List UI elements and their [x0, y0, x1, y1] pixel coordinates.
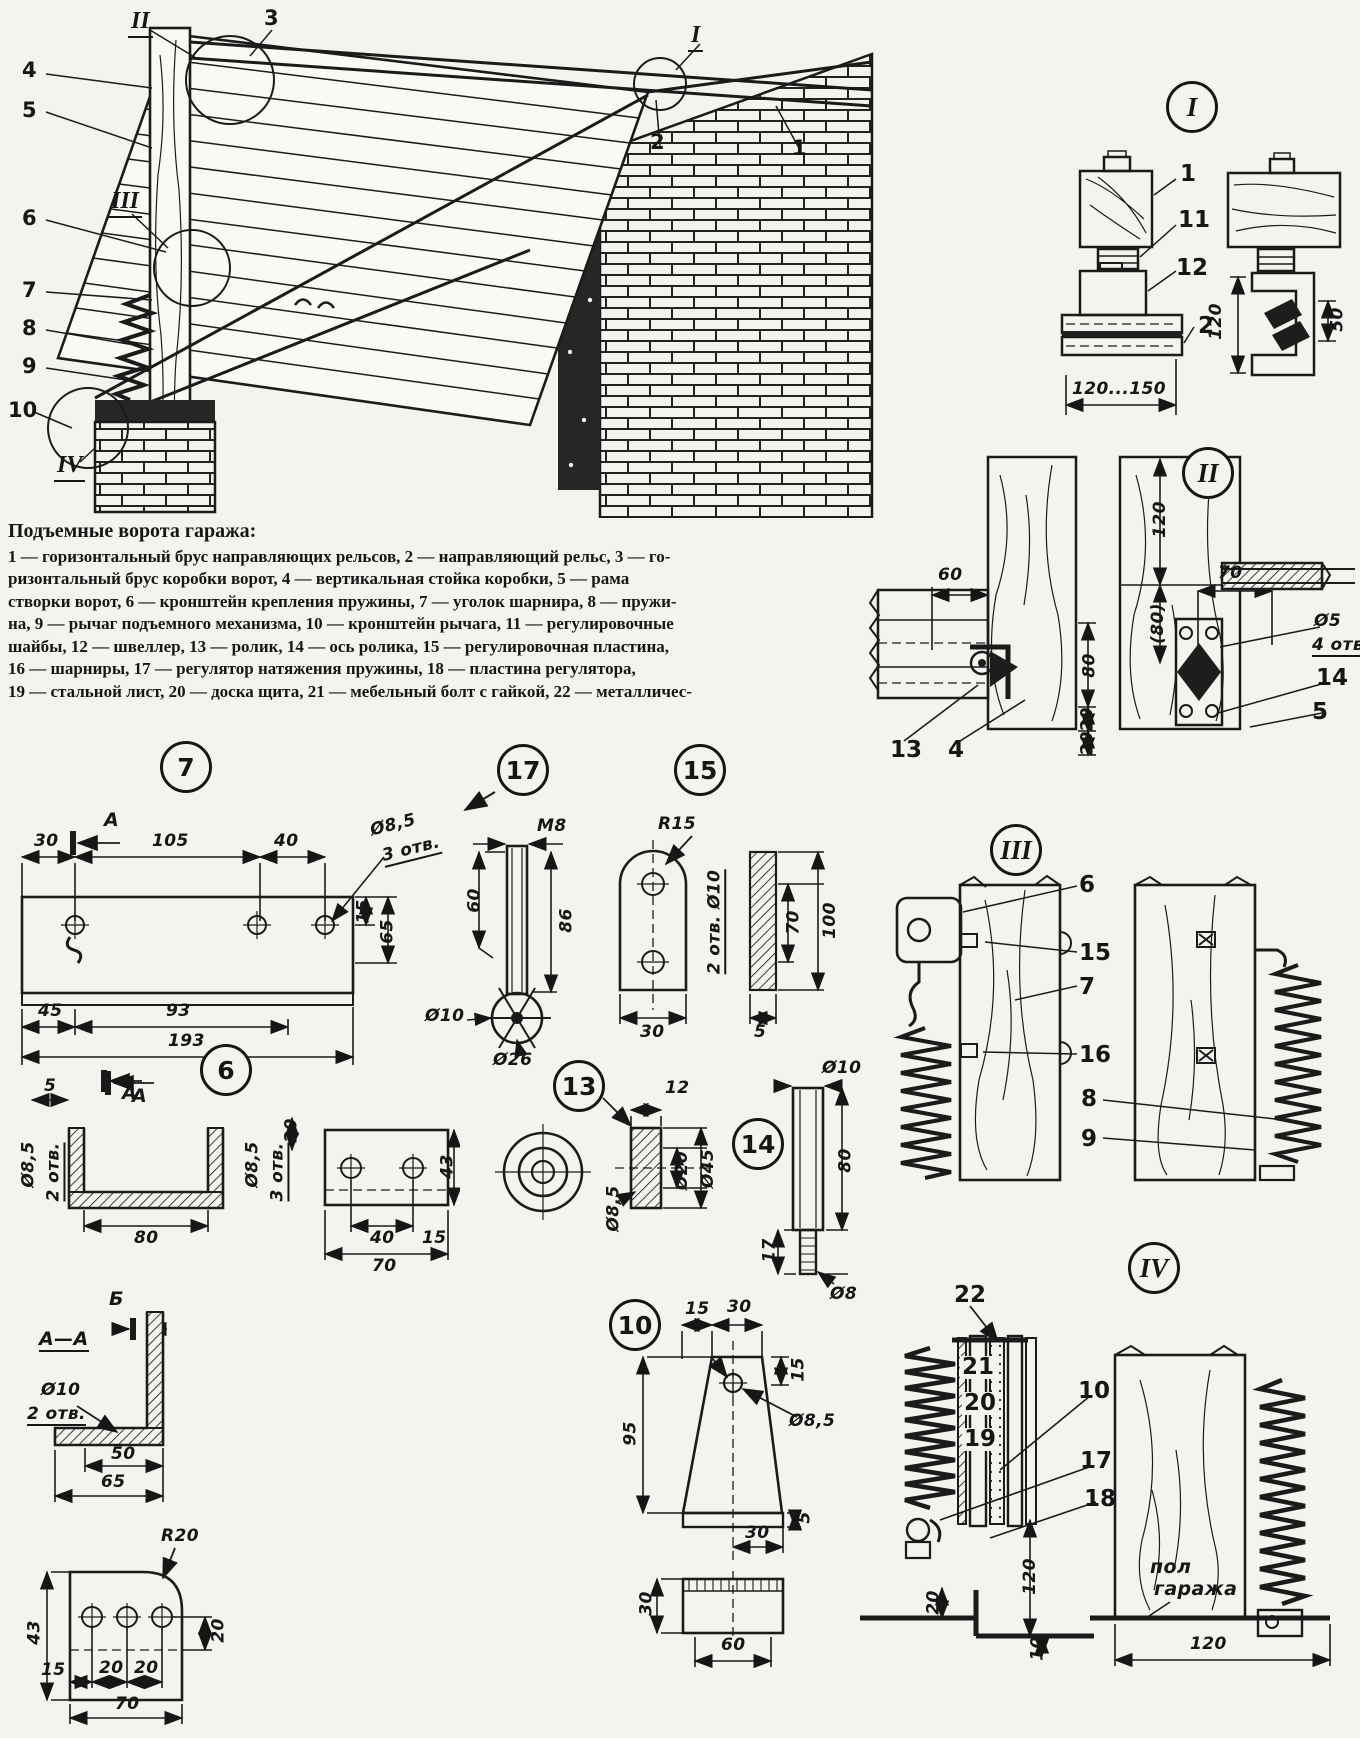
- detail-III-part-8: 8: [1081, 1088, 1097, 1111]
- part-13-dim-12: 12: [665, 1080, 689, 1097]
- detail-II-badge: II: [1182, 447, 1234, 499]
- part-13-dim-phi85: Ø8,5: [606, 1185, 623, 1231]
- part-10-dim-15: 15: [685, 1301, 709, 1318]
- main-callout-1: 1: [792, 138, 807, 159]
- detail-IV-dim-120: 120: [1022, 1558, 1039, 1595]
- detail-II-dim-70: 70: [1218, 565, 1242, 582]
- detail-IV-floor-label-2: гаража: [1154, 1580, 1237, 1599]
- detail-II-dim-120: 120: [1152, 501, 1169, 538]
- detail-IV-part-22: 22: [954, 1284, 986, 1307]
- detail-II-part-4: 4: [948, 739, 964, 762]
- bracket-dim-43: 43: [27, 1620, 44, 1644]
- detail-I-badge: I: [1166, 81, 1218, 133]
- main-callout-3: 3: [264, 8, 279, 29]
- part-6-dim-20: 20: [284, 1118, 301, 1142]
- detail-I-dim-120: 120: [1208, 303, 1225, 340]
- part-15-dim-100: 100: [822, 902, 839, 939]
- part-15: 15 R15 2 отв. Ø10 70 100 30 5: [612, 680, 847, 1075]
- detail-III-part-15: 15: [1079, 942, 1111, 965]
- detail-III-part-9: 9: [1081, 1128, 1097, 1151]
- detail-II-dim-20b: 20: [1080, 731, 1097, 755]
- detail-I-dim-50: 50: [1330, 307, 1347, 331]
- section-AA-dim-otv: 2 отв.: [27, 1406, 86, 1426]
- caption-line: ризонтальный брус коробки ворот, 4 — вер…: [8, 568, 828, 590]
- part-17-dim-phi10: Ø10: [425, 1008, 464, 1025]
- detail-I-part-11: 11: [1178, 209, 1210, 232]
- part-7-dim-30: 30: [34, 833, 58, 850]
- detail-II-part-13: 13: [890, 739, 922, 762]
- part-7-dim-65: 65: [380, 919, 397, 943]
- section-AA-dim-50: 50: [111, 1446, 135, 1463]
- part-15-dim-otv: 2 отв. Ø10: [706, 870, 726, 975]
- part-17-dim-m8: М8: [537, 818, 567, 835]
- part-13-dim-phi45: Ø45: [700, 1149, 717, 1188]
- garage-gate-illustration: [0, 0, 940, 518]
- part-15-dim-30: 30: [640, 1024, 664, 1041]
- detail-IV-part-18: 18: [1084, 1488, 1116, 1511]
- caption-line: 1 — горизонтальный брус направляющих рел…: [8, 546, 828, 568]
- detail-IV-badge: IV: [1128, 1242, 1180, 1294]
- part-10-dim-30c: 30: [639, 1591, 656, 1615]
- part-6-dim-5: 5: [44, 1078, 56, 1095]
- caption-line: 16 — шарниры, 17 — регулятор натяжения п…: [8, 658, 828, 680]
- bracket-dim-15: 15: [41, 1662, 65, 1679]
- part-14-badge: 14: [732, 1118, 784, 1170]
- part-14-dim-17: 17: [762, 1238, 779, 1262]
- bracket-dim-r20: R20: [161, 1528, 199, 1545]
- main-drawing: II 3 4 5 6 7 8 9 10 III IV 2 1 I: [0, 0, 940, 518]
- part-10-dim-30: 30: [727, 1299, 751, 1316]
- detail-IV-part-17: 17: [1080, 1450, 1112, 1473]
- page: II 3 4 5 6 7 8 9 10 III IV 2 1 I Подъемн…: [0, 0, 1360, 1738]
- part-10-badge: 10: [609, 1299, 661, 1351]
- main-callout-4: 4: [22, 60, 37, 81]
- part-6-dim-40: 40: [370, 1230, 394, 1247]
- bracket-dim-20b: 20: [134, 1660, 158, 1677]
- part-6-section-a: А: [122, 1084, 137, 1103]
- part-7-dim-45: 45: [38, 1003, 62, 1020]
- detail-III-badge: III: [990, 824, 1042, 876]
- section-AA-dim-65: 65: [101, 1474, 125, 1491]
- detail-I-part-1: 1: [1180, 163, 1196, 186]
- part-10-dim-60: 60: [721, 1637, 745, 1654]
- part-6-dim-15: 15: [422, 1230, 446, 1247]
- section-AA-marker-b: Б: [109, 1290, 124, 1309]
- part-6-dim-70: 70: [372, 1258, 396, 1275]
- detail-IV-part-20: 20: [962, 1392, 998, 1415]
- part-6-dim-phiL: Ø8,5: [21, 1141, 38, 1187]
- detail-IV-drawing: [790, 1190, 1360, 1738]
- part-6-dim-80: 80: [134, 1230, 158, 1247]
- section-AA-dim-phi10: Ø10: [41, 1382, 80, 1399]
- part-6-badge: 6: [200, 1044, 252, 1096]
- detail-I-drawing: [940, 75, 1360, 420]
- part-7-dim-93: 93: [166, 1003, 190, 1020]
- detail-IV-dim-20: 20: [926, 1590, 943, 1614]
- part-6-dim-phiR: Ø8,5: [245, 1141, 262, 1187]
- detail-II-dim-4otv: 4 отв.: [1312, 637, 1360, 657]
- detail-I: I 1 11 12 2 120...150 120 50: [940, 75, 1360, 420]
- part-7-dim-105: 105: [152, 833, 189, 850]
- caption-line: створки ворот, 6 — кронштейн крепления п…: [8, 591, 828, 613]
- main-callout-2: 2: [650, 132, 665, 153]
- part-13-badge: 13: [553, 1060, 605, 1112]
- part-7-section-a: А: [104, 811, 119, 830]
- main-callout-8: 8: [22, 318, 37, 339]
- main-callout-5: 5: [22, 100, 37, 121]
- detail-IV-part-10: 10: [1078, 1380, 1110, 1403]
- part-17-dim-60: 60: [467, 888, 484, 912]
- detail-II-dim-60: 60: [938, 567, 962, 584]
- part-14-dim-80: 80: [838, 1148, 855, 1172]
- detail-II-part-5: 5: [1312, 701, 1328, 724]
- part-10-dim-30b: 30: [745, 1525, 769, 1542]
- detail-III-part-6: 6: [1079, 874, 1095, 897]
- main-callout-I: I: [688, 22, 703, 52]
- main-callout-7: 7: [22, 280, 37, 301]
- caption: Подъемные ворота гаража: 1 — горизонталь…: [8, 520, 828, 703]
- part-17-dim-86: 86: [559, 908, 576, 932]
- part-13: 13 12 Ø8,5 Ø20 Ø45: [455, 1040, 720, 1275]
- part-17-badge: 17: [497, 744, 549, 796]
- bracket-dim-20: 20: [211, 1618, 228, 1642]
- detail-II-dim-20a: 20: [1080, 707, 1097, 731]
- detail-I-part-12: 12: [1176, 257, 1208, 280]
- part-6-dim-otvL: 2 отв.: [45, 1143, 65, 1202]
- detail-IV-part-19: 19: [962, 1428, 998, 1451]
- part-7-badge: 7: [160, 741, 212, 793]
- main-callout-III: III: [108, 188, 142, 218]
- main-callout-6: 6: [22, 208, 37, 229]
- part-13-dim-phi20: Ø20: [674, 1151, 691, 1190]
- part-15-dim-5: 5: [754, 1024, 766, 1041]
- main-callout-10: 10: [8, 400, 37, 421]
- part-15-dim-r15: R15: [658, 816, 696, 833]
- part-7-dim-15: 15: [356, 899, 373, 923]
- detail-II-dim-80: 80: [1082, 653, 1099, 677]
- detail-III-drawing: [855, 790, 1360, 1195]
- detail-II-dim-80p: (80): [1150, 603, 1167, 644]
- main-callout-IV: IV: [54, 452, 85, 482]
- bracket-dim-20a: 20: [99, 1660, 123, 1677]
- part-6-dim-otvR: 3 отв.: [269, 1143, 289, 1202]
- part-15-dim-70: 70: [786, 910, 803, 934]
- detail-III-part-7: 7: [1079, 976, 1095, 999]
- detail-IV-dim-10: 10: [1030, 1636, 1047, 1660]
- bracket-plate-drawing: [15, 1520, 295, 1738]
- part-10-dim-95: 95: [623, 1421, 640, 1445]
- detail-II: II 60 80 20 20 120 (80) 70 Ø5 4 отв. 13 …: [820, 395, 1360, 800]
- bracket-dim-70: 70: [115, 1696, 139, 1713]
- part-15-badge: 15: [674, 744, 726, 796]
- part-7-dim-40: 40: [274, 833, 298, 850]
- detail-III: III 6 15 7 16 8 9: [855, 790, 1360, 1195]
- detail-IV-dim-120b: 120: [1190, 1636, 1227, 1653]
- detail-II-dim-phi5: Ø5: [1314, 613, 1341, 630]
- part-15-drawing: [612, 680, 847, 1075]
- detail-IV-part-21: 21: [960, 1356, 996, 1379]
- caption-line: шайбы, 12 — швеллер, 13 — ролик, 14 — ос…: [8, 636, 828, 658]
- detail-IV-floor-label-1: пол: [1150, 1558, 1191, 1577]
- detail-II-part-14: 14: [1316, 667, 1348, 690]
- main-callout-9: 9: [22, 356, 37, 377]
- main-callout-II: II: [128, 8, 153, 38]
- detail-IV: IV 22 21 20 19 10 17 18 20 120 10 пол га…: [790, 1190, 1360, 1738]
- section-AA-title: А—А: [39, 1330, 89, 1352]
- caption-line: на, 9 — рычаг подъемного механизма, 10 —…: [8, 613, 828, 635]
- detail-III-part-16: 16: [1079, 1044, 1111, 1067]
- bracket-plate: R20 43 20 15 20 20 70: [15, 1520, 295, 1738]
- caption-title: Подъемные ворота гаража:: [8, 520, 828, 543]
